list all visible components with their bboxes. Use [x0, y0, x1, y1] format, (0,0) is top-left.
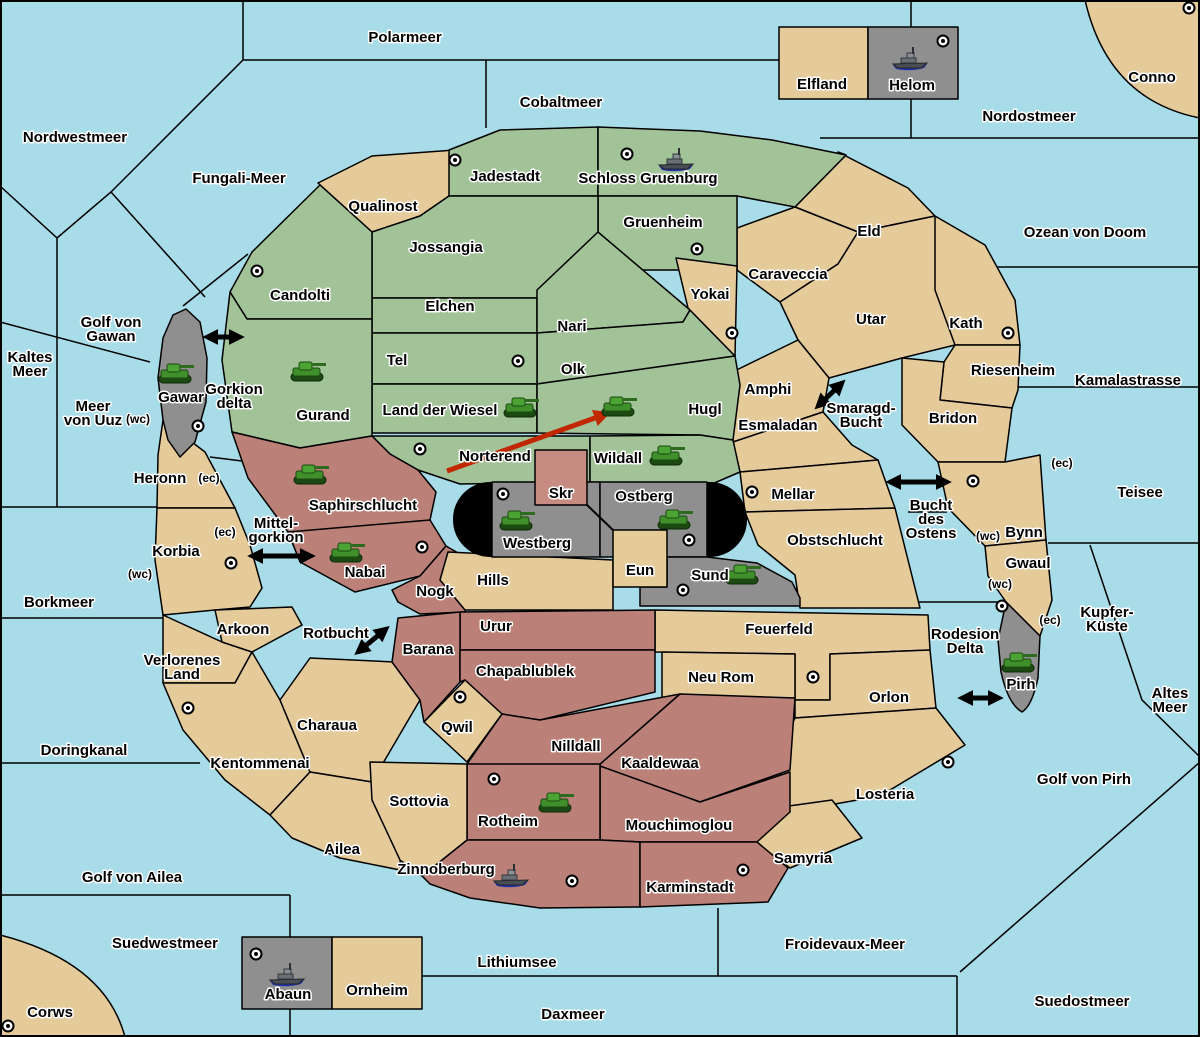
territory-label-gawar: Gawar — [158, 389, 204, 406]
territory-label-pirh: Pirh — [1006, 676, 1035, 693]
sea-label-golf-von-gawan: Golf vonGawan — [81, 314, 142, 345]
territory-label-gwaul: Gwaul — [1005, 555, 1050, 572]
supply-center-dot-schloss_gruenburg — [622, 149, 633, 160]
supply-center-dot-gruenheim — [692, 244, 703, 255]
territory-label-feuerfeld: Feuerfeld — [745, 621, 813, 638]
territory-label-candolti: Candolti — [270, 287, 330, 304]
supply-center-dot-candolti — [252, 266, 263, 277]
territory-label-gruenheim: Gruenheim — [623, 214, 702, 231]
territory-label-arkoon: Arkoon — [217, 621, 270, 638]
supply-center-dot-nabai — [417, 542, 428, 553]
coast-marker-4: (ec) — [1051, 456, 1072, 470]
supply-center-dot-westberg — [498, 489, 509, 500]
supply-center-dot-jadestadt — [450, 155, 461, 166]
sea-label-altes-meer: AltesMeer — [1152, 685, 1189, 716]
sea-label-kupfer-kueste: Kupfer-Küste — [1080, 604, 1133, 635]
territory-label-kaaldewaa: Kaaldewaa — [621, 755, 699, 772]
territory-label-kentommenai: Kentommenai — [210, 755, 309, 772]
territory-label-tel: Tel — [387, 352, 408, 369]
supply-center-dot-kath — [1003, 328, 1014, 339]
sea-label-mittel-gorkion: Mittel-gorkion — [249, 515, 304, 546]
territory-label-helom: Helom — [889, 77, 935, 94]
territory-label-urur: Urur — [480, 618, 512, 635]
sea-label-kamalastrasse: Kamalastrasse — [1075, 372, 1181, 389]
territory-label-obstschlucht: Obstschlucht — [787, 532, 883, 549]
coast-marker-7: (ec) — [1039, 613, 1060, 627]
territory-label-orlon: Orlon — [869, 689, 909, 706]
territory-label-jadestadt: Jadestadt — [470, 168, 540, 185]
territory-label-bynn: Bynn — [1005, 524, 1043, 541]
territory-karminstadt[interactable] — [640, 842, 788, 907]
territory-label-nari: Nari — [557, 318, 586, 335]
territory-label-sund: Sund — [691, 567, 729, 584]
sea-label-golf-von-ailea: Golf von Ailea — [82, 869, 183, 886]
sea-label-lithiumsee: Lithiumsee — [477, 954, 556, 971]
sea-label-polarmeer: Polarmeer — [368, 29, 442, 46]
territory-label-eld: Eld — [857, 223, 880, 240]
territory-label-losteria: Losteria — [856, 786, 915, 803]
territory-label-kath: Kath — [949, 315, 982, 332]
territory-label-elchen: Elchen — [425, 298, 474, 315]
sea-label-suedwestmeer: Suedwestmeer — [112, 935, 218, 952]
supply-center-dot-karminstadt — [738, 865, 749, 876]
coast-marker-5: (wc) — [976, 529, 1000, 543]
supply-center-dot-ostberg — [684, 535, 695, 546]
supply-center-dot-qwil — [455, 692, 466, 703]
game-map-stage: QualinostJadestadtSchloss GruenburgGruen… — [0, 0, 1200, 1037]
territory-label-chapablublek: Chapablublek — [476, 663, 575, 680]
territory-label-bridon: Bridon — [929, 410, 977, 427]
territory-label-schloss_gruenburg: Schloss Gruenburg — [578, 170, 717, 187]
sea-label-kaltes-meer: KaltesMeer — [7, 349, 52, 380]
territory-label-karminstadt: Karminstadt — [646, 879, 734, 896]
strategy-map: QualinostJadestadtSchloss GruenburgGruen… — [0, 0, 1200, 1037]
sea-label-froidevaux-meer: Froidevaux-Meer — [785, 936, 905, 953]
territory-label-hills: Hills — [477, 572, 509, 589]
supply-center-dot-kentommenai — [183, 703, 194, 714]
territory-label-heronn: Heronn — [134, 470, 187, 487]
territory-label-caraveccia: Caraveccia — [748, 266, 828, 283]
coast-marker-6: (wc) — [988, 577, 1012, 591]
territory-label-elfland: Elfland — [797, 76, 847, 93]
territory-label-jossangia: Jossangia — [409, 239, 483, 256]
coast-marker-3: (wc) — [128, 567, 152, 581]
sea-label-nordostmeer: Nordostmeer — [982, 108, 1076, 125]
territory-label-qwil: Qwil — [441, 719, 473, 736]
supply-center-dot-gawar — [193, 421, 204, 432]
territory-label-nilldall: Nilldall — [551, 738, 600, 755]
supply-center-dot-bynn — [968, 476, 979, 487]
territory-label-olk: Olk — [561, 361, 586, 378]
territory-label-skr: Skr — [549, 485, 573, 502]
sea-label-nordwestmeer: Nordwestmeer — [23, 129, 127, 146]
supply-center-dot-norterend — [415, 444, 426, 455]
territory-label-land_der_wiesel: Land der Wiesel — [383, 402, 498, 419]
territory-label-zinnoberburg: Zinnoberburg — [397, 861, 495, 878]
territory-label-hugl: Hugl — [688, 401, 721, 418]
supply-center-dot-yokai — [727, 328, 738, 339]
territory-label-saphirschlucht: Saphirschlucht — [309, 497, 417, 514]
territory-label-mouchimoglou: Mouchimoglou — [626, 817, 733, 834]
territory-label-abaun: Abaun — [265, 986, 312, 1003]
territory-label-sottovia: Sottovia — [389, 793, 449, 810]
sea-label-teisee: Teisee — [1117, 484, 1163, 501]
territory-label-conno: Conno — [1128, 69, 1175, 86]
supply-center-dot-corws — [3, 1021, 14, 1032]
sea-label-daxmeer: Daxmeer — [541, 1006, 605, 1023]
territory-hills[interactable] — [440, 552, 613, 610]
territory-label-neu_rom: Neu Rom — [688, 669, 754, 686]
supply-center-dot-helom — [938, 36, 949, 47]
supply-center-dot-conno — [1184, 3, 1195, 14]
sea-label-fungali-meer: Fungali-Meer — [192, 170, 286, 187]
sea-label-rotbucht: Rotbucht — [303, 625, 369, 642]
supply-center-dot-korbia — [226, 558, 237, 569]
territory-label-corws: Corws — [27, 1004, 73, 1021]
territory-label-yokai: Yokai — [691, 286, 730, 303]
supply-center-dot-tel — [513, 356, 524, 367]
sea-label-suedostmeer: Suedostmeer — [1034, 993, 1129, 1010]
supply-center-dot-abaun — [251, 949, 262, 960]
territory-label-mellar: Mellar — [771, 486, 815, 503]
territory-label-barana: Barana — [403, 641, 455, 658]
supply-center-dot-sund — [678, 585, 689, 596]
supply-center-dot-feuerfeld — [808, 672, 819, 683]
territory-label-wildall: Wildall — [594, 450, 642, 467]
territory-label-westberg: Westberg — [503, 535, 571, 552]
territory-label-amphi: Amphi — [745, 381, 792, 398]
territory-label-nogk: Nogk — [416, 583, 454, 600]
territory-label-ornheim: Ornheim — [346, 982, 408, 999]
territory-label-korbia: Korbia — [152, 543, 200, 560]
supply-center-dot-rotheim — [489, 774, 500, 785]
territory-label-ailea: Ailea — [324, 841, 361, 858]
territory-label-norterend: Norterend — [459, 448, 531, 465]
sea-label-borkmeer: Borkmeer — [24, 594, 94, 611]
supply-center-dot-pirh — [997, 601, 1008, 612]
territory-label-ostberg: Ostberg — [615, 488, 673, 505]
territory-label-rotheim: Rotheim — [478, 813, 538, 830]
coast-marker-1: (ec) — [198, 471, 219, 485]
supply-center-dot-losteria — [943, 757, 954, 768]
supply-center-dot-mellar — [747, 487, 758, 498]
sea-label-ozean-von-doom: Ozean von Doom — [1024, 224, 1147, 241]
territory-label-esmaladan: Esmaladan — [738, 417, 817, 434]
territory-label-gurand: Gurand — [296, 407, 349, 424]
sea-label-golf-von-pirh: Golf von Pirh — [1037, 771, 1131, 788]
coast-marker-2: (ec) — [214, 525, 235, 539]
territory-label-samyria: Samyria — [774, 850, 833, 867]
territory-label-nabai: Nabai — [345, 564, 386, 581]
territory-label-charaua: Charaua — [297, 717, 358, 734]
sea-label-doringkanal: Doringkanal — [41, 742, 128, 759]
territory-label-eun: Eun — [626, 562, 654, 579]
supply-center-dot-zinnoberburg — [567, 876, 578, 887]
territory-label-utar: Utar — [856, 311, 886, 328]
coast-marker-0: (wc) — [126, 412, 150, 426]
sea-label-cobaltmeer: Cobaltmeer — [520, 94, 603, 111]
territory-label-qualinost: Qualinost — [348, 198, 417, 215]
territory-label-riesenheim: Riesenheim — [971, 362, 1055, 379]
